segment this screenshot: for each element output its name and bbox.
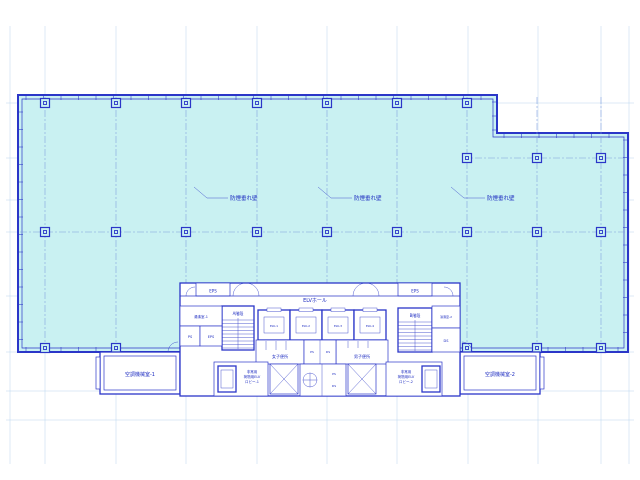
floor-annotation-2: 防煙垂れ壁: [354, 194, 382, 202]
floor-annotation-3: 防煙垂れ壁: [487, 194, 515, 202]
kitchenette-2-label: 湯沸室-2: [440, 314, 452, 319]
column-marker: [597, 228, 606, 237]
service-core: EPS EPS ELVホール ELV-1 ELV-2 ELV-3: [180, 283, 460, 396]
elevator-door: [363, 308, 377, 312]
emergency-lobby-1: 非常用 荷物用ELV ロビー-1: [214, 362, 268, 396]
lobby-2-label-line1: 非常用: [401, 369, 412, 374]
stairway-a: A階段: [222, 306, 254, 350]
stair-b-label: B階段: [410, 312, 421, 318]
ps-cluster-label: PS: [332, 372, 336, 376]
mens-toilet-room: [336, 340, 388, 364]
hvac-room-1-end-cap: [96, 357, 100, 389]
elevator-label-4: ELV-4: [366, 324, 374, 328]
floor-annotation-1: 防煙垂れ壁: [230, 194, 258, 202]
lobby-1-label-line3: ロビー-1: [245, 379, 259, 384]
column-marker: [463, 99, 472, 108]
elevator-door: [331, 308, 345, 312]
column-marker: [253, 228, 262, 237]
kitchenette-1-label: 湯沸室-1: [194, 314, 208, 319]
blueprint-page: 防煙垂れ壁 防煙垂れ壁 防煙垂れ壁 空調機械室-1 空調機械室-2 EPS EP…: [0, 0, 640, 480]
column-marker: [112, 99, 121, 108]
column-marker: [463, 154, 472, 163]
elevator-door: [267, 308, 281, 312]
floor-plan-drawing: 防煙垂れ壁 防煙垂れ壁 防煙垂れ壁 空調機械室-1 空調機械室-2 EPS EP…: [0, 0, 640, 480]
lobby-2-label-line3: ロビー-2: [399, 379, 413, 384]
elevator-door: [299, 308, 313, 312]
column-marker: [253, 99, 262, 108]
column-marker: [182, 228, 191, 237]
center-service-cluster: PS DS: [300, 364, 346, 396]
shaft-x-left: [270, 364, 298, 394]
lobby-2-room: [386, 362, 442, 396]
column-marker: [41, 344, 50, 353]
column-marker: [597, 344, 606, 353]
emergency-lobby-2: 非常用 荷物用ELV ロビー-2: [386, 362, 442, 396]
lobby-2-label-line2: 荷物用ELV: [398, 374, 415, 379]
elevator-bank: ELV-1 ELV-2 ELV-3 ELV-4: [258, 308, 386, 340]
column-marker: [112, 344, 121, 353]
elevator-hall-label: ELVホール: [303, 298, 327, 304]
lobby-1-label-line1: 非常用: [247, 369, 258, 374]
column-marker: [393, 99, 402, 108]
column-marker: [112, 228, 121, 237]
toilets: 女子便所 男子便所 PS DS: [256, 340, 388, 364]
column-marker: [41, 99, 50, 108]
column-marker: [533, 228, 542, 237]
lobby-1-room: [214, 362, 268, 396]
column-marker: [597, 154, 606, 163]
elevator-label-3: ELV-3: [334, 324, 342, 328]
column-marker: [182, 99, 191, 108]
lobby-1-label-line2: 荷物用ELV: [244, 374, 261, 379]
column-marker: [323, 99, 332, 108]
hvac-room-1-label: 空調機械室-1: [125, 371, 155, 378]
column-marker: [533, 344, 542, 353]
womens-toilet-label: 女子便所: [272, 353, 288, 359]
ds-shaft-label: DS: [444, 339, 450, 343]
shaft-x-right: [348, 364, 376, 394]
stair-a-label: A階段: [233, 310, 244, 316]
column-marker: [533, 154, 542, 163]
column-marker: [323, 228, 332, 237]
elevator-label-2: ELV-2: [302, 324, 310, 328]
mens-toilet-label: 男子便所: [354, 353, 370, 359]
eps-right-label: EPS: [411, 289, 419, 294]
ds-cluster-label: DS: [332, 384, 336, 388]
eps-shaft-label: EPS: [208, 335, 215, 339]
ps-cell-label: PS: [310, 350, 314, 354]
hvac-room-2-label: 空調機械室-2: [485, 371, 515, 378]
column-marker: [463, 344, 472, 353]
eps-left-label: EPS: [209, 289, 217, 294]
womens-toilet-room: [256, 340, 304, 364]
ds-cell-label: DS: [326, 350, 330, 354]
column-marker: [393, 228, 402, 237]
column-marker: [463, 228, 472, 237]
hvac-room-2-end-cap: [540, 357, 544, 389]
elevator-label-1: ELV-1: [270, 324, 278, 328]
stairway-b: B階段: [398, 308, 432, 352]
column-marker: [41, 228, 50, 237]
